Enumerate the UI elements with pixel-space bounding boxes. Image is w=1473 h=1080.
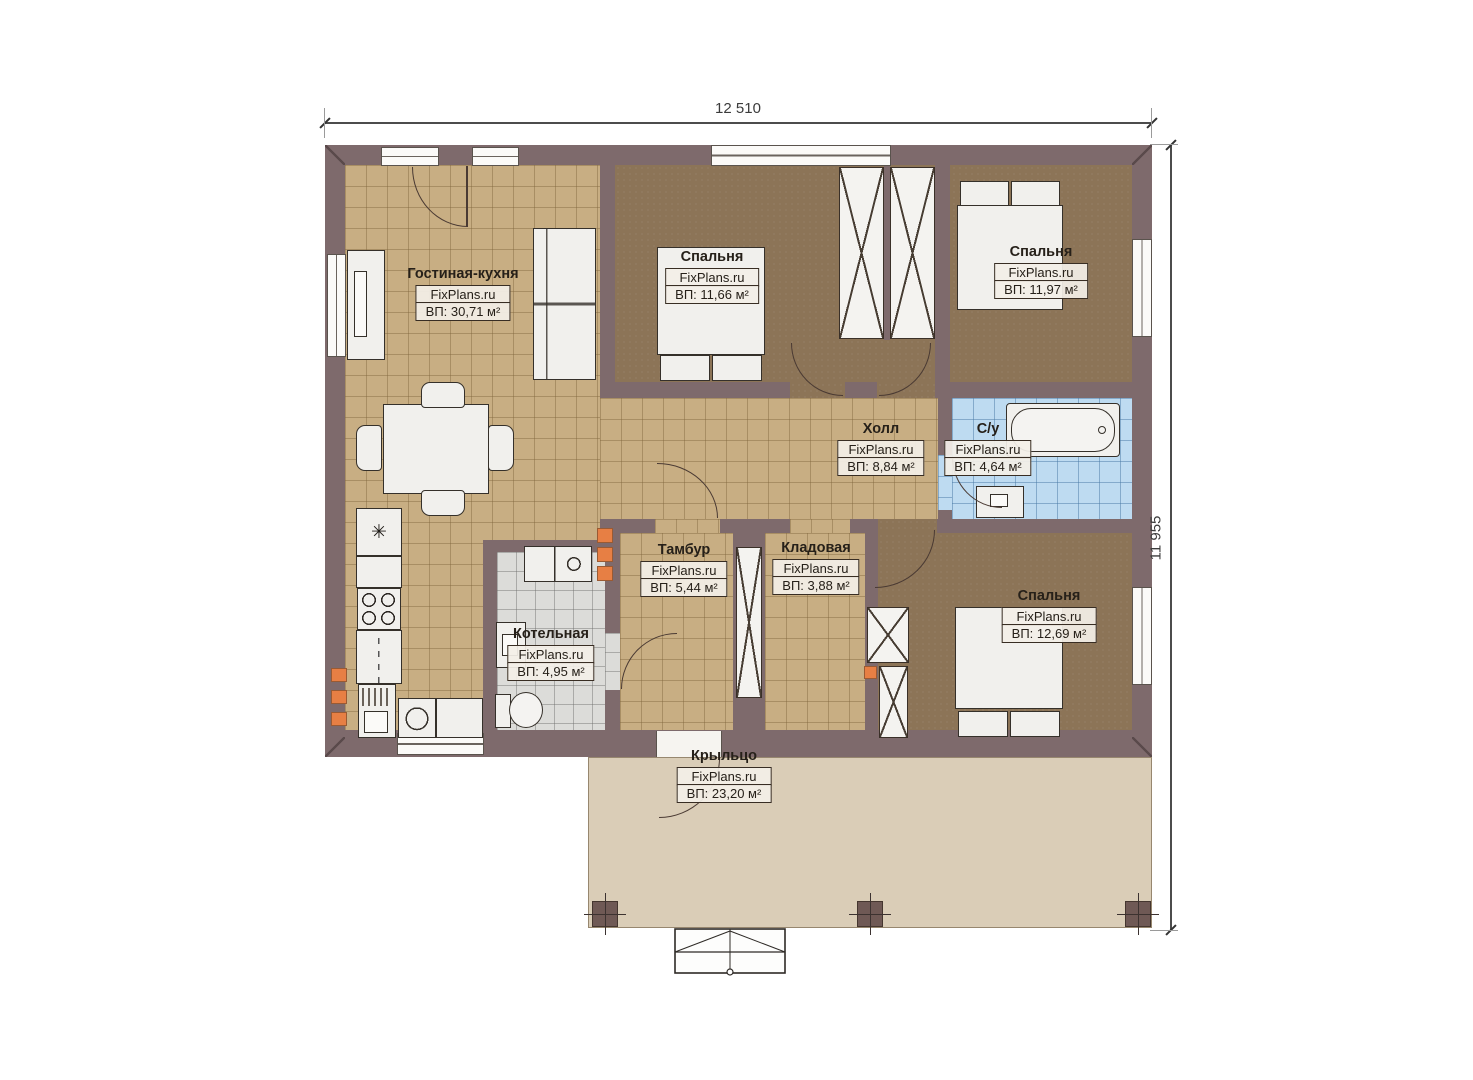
- vent-marker: [597, 566, 613, 581]
- threshold: [655, 519, 720, 533]
- room-name: Тамбур: [658, 542, 711, 558]
- area-box: ВП: 3,88 м²: [772, 576, 859, 595]
- area-box: ВП: 30,71 м²: [416, 302, 511, 321]
- dimension-line-right: [1170, 145, 1172, 931]
- vent-marker: [331, 712, 347, 726]
- label-boxes: FixPlans.ru ВП: 3,88 м²: [772, 559, 859, 595]
- porch-post: [857, 901, 883, 927]
- door-leaf: [466, 166, 468, 227]
- threshold: [790, 519, 850, 533]
- wall-segment: [935, 382, 1132, 398]
- window: [472, 147, 519, 166]
- room-name: Спальня: [1018, 588, 1081, 604]
- window: [711, 145, 891, 166]
- extension-line: [1150, 144, 1178, 145]
- wall-segment: [600, 382, 790, 398]
- brand-box: FixPlans.ru: [994, 263, 1088, 282]
- room-name: Кладовая: [781, 540, 850, 556]
- chair: [421, 382, 465, 408]
- chair: [488, 425, 514, 471]
- room-name: Гостиная-кухня: [407, 266, 518, 282]
- window: [1132, 587, 1152, 685]
- label-boxes: FixPlans.ru ВП: 5,44 м²: [640, 561, 727, 597]
- area-box: ВП: 11,97 м²: [994, 280, 1088, 299]
- room-name: Крыльцо: [691, 748, 757, 764]
- pillow: [960, 181, 1009, 206]
- wall-segment: [720, 519, 790, 533]
- brand-box: FixPlans.ru: [416, 285, 511, 304]
- room-label-bathroom: С/у FixPlans.ru ВП: 4,64 м²: [944, 421, 1031, 476]
- wall-segment: [605, 690, 620, 741]
- wall-segment: [937, 519, 1152, 533]
- pillow: [660, 355, 710, 381]
- extension-line: [1150, 930, 1178, 931]
- label-boxes: FixPlans.ru ВП: 11,97 м²: [994, 263, 1088, 299]
- floor-plan-canvas: 12 510 11 955: [0, 0, 1473, 1080]
- room-label-porch: Крыльцо FixPlans.ru ВП: 23,20 м²: [677, 748, 772, 803]
- chair: [356, 425, 382, 471]
- kitchen-counter: [436, 698, 483, 738]
- room-label-hall: Холл FixPlans.ru ВП: 8,84 м²: [837, 421, 924, 476]
- threshold: [605, 633, 620, 690]
- stove: [357, 588, 401, 630]
- kitchen-counter: [356, 556, 402, 588]
- brand-box: FixPlans.ru: [772, 559, 859, 578]
- area-box: ВП: 8,84 м²: [837, 457, 924, 476]
- extension-line: [324, 108, 325, 138]
- vent-marker: [331, 690, 347, 704]
- label-boxes: FixPlans.ru ВП: 8,84 м²: [837, 440, 924, 476]
- toilet-bowl: [509, 692, 543, 728]
- tv-stand: [347, 250, 385, 360]
- label-boxes: FixPlans.ru ВП: 4,95 м²: [507, 645, 594, 681]
- label-boxes: FixPlans.ru ВП: 23,20 м²: [677, 767, 772, 803]
- window: [381, 147, 439, 166]
- wardrobe: [839, 167, 884, 339]
- brand-box: FixPlans.ru: [507, 645, 594, 664]
- corner-hatch: [1132, 145, 1152, 165]
- wall-segment: [935, 165, 950, 398]
- washer-door: [364, 711, 388, 733]
- dimension-height-label: 11 955: [1148, 516, 1165, 561]
- vent-marker: [597, 528, 613, 543]
- pillow: [958, 711, 1008, 737]
- wall-outer-left: [325, 145, 345, 757]
- area-box: ВП: 11,66 м²: [665, 285, 759, 304]
- area-box: ВП: 4,64 м²: [944, 457, 1031, 476]
- room-label-bedroom-2: Спальня FixPlans.ru ВП: 11,97 м²: [994, 244, 1088, 299]
- area-box: ВП: 12,69 м²: [1002, 624, 1097, 643]
- brand-box: FixPlans.ru: [640, 561, 727, 580]
- wardrobe: [890, 167, 935, 339]
- label-boxes: FixPlans.ru ВП: 11,66 м²: [665, 268, 759, 304]
- brand-box: FixPlans.ru: [677, 767, 772, 786]
- vent-marker: [331, 668, 347, 682]
- vent-marker: [864, 666, 877, 679]
- wall-segment: [850, 519, 878, 533]
- kitchen-counter: [356, 630, 402, 684]
- room-label-vestibule: Тамбур FixPlans.ru ВП: 5,44 м²: [640, 542, 727, 597]
- label-boxes: FixPlans.ru ВП: 30,71 м²: [416, 285, 511, 321]
- room-name: Спальня: [681, 249, 744, 265]
- label-boxes: FixPlans.ru ВП: 12,69 м²: [1002, 607, 1097, 643]
- wardrobe: [867, 607, 909, 663]
- label-boxes: FixPlans.ru ВП: 4,64 м²: [944, 440, 1031, 476]
- room-label-living-kitchen: Гостиная-кухня FixPlans.ru ВП: 30,71 м²: [407, 266, 518, 321]
- pocket-door: [736, 547, 762, 698]
- wardrobe: [879, 666, 908, 738]
- pillow: [712, 355, 762, 381]
- pillow: [1010, 711, 1060, 737]
- brand-box: FixPlans.ru: [837, 440, 924, 459]
- corner-hatch: [1132, 737, 1152, 757]
- pillow: [1011, 181, 1060, 206]
- corner-hatch: [325, 737, 345, 757]
- tv-panel: [354, 271, 367, 337]
- bathtub-drain: [1098, 426, 1106, 434]
- washing-machine: [358, 684, 396, 738]
- washer-detail: [362, 688, 392, 706]
- porch-steps: [674, 928, 786, 978]
- extension-line: [1151, 108, 1152, 138]
- kitchen-sink: [398, 698, 436, 738]
- room-name: Холл: [863, 421, 899, 437]
- room-label-boiler-room: Котельная FixPlans.ru ВП: 4,95 м²: [507, 626, 594, 681]
- porch-post: [1125, 901, 1151, 927]
- wall-segment: [845, 382, 877, 398]
- porch-post: [592, 901, 618, 927]
- dining-table: [383, 404, 489, 494]
- room-label-bedroom-3: Спальня FixPlans.ru ВП: 12,69 м²: [1002, 588, 1097, 643]
- dimension-line-top: [325, 122, 1152, 124]
- area-box: ВП: 5,44 м²: [640, 578, 727, 597]
- brand-box: FixPlans.ru: [665, 268, 759, 287]
- corner-hatch: [325, 145, 345, 165]
- chair: [421, 490, 465, 516]
- brand-box: FixPlans.ru: [1002, 607, 1097, 626]
- wall-segment: [600, 165, 615, 398]
- room-label-bedroom-1: Спальня FixPlans.ru ВП: 11,66 м²: [665, 249, 759, 304]
- window: [327, 254, 346, 357]
- area-box: ВП: 4,95 м²: [507, 662, 594, 681]
- window: [1132, 239, 1152, 337]
- boiler: [524, 546, 592, 582]
- room-name: Котельная: [513, 626, 589, 642]
- room-name: Спальня: [1010, 244, 1073, 260]
- room-label-storage: Кладовая FixPlans.ru ВП: 3,88 м²: [772, 540, 859, 595]
- fridge: ✳: [356, 508, 402, 556]
- area-box: ВП: 23,20 м²: [677, 784, 772, 803]
- sofa: [533, 228, 596, 380]
- brand-box: FixPlans.ru: [944, 440, 1031, 459]
- vent-marker: [597, 547, 613, 562]
- dimension-width-label: 12 510: [715, 100, 761, 117]
- room-name: С/у: [977, 421, 1000, 437]
